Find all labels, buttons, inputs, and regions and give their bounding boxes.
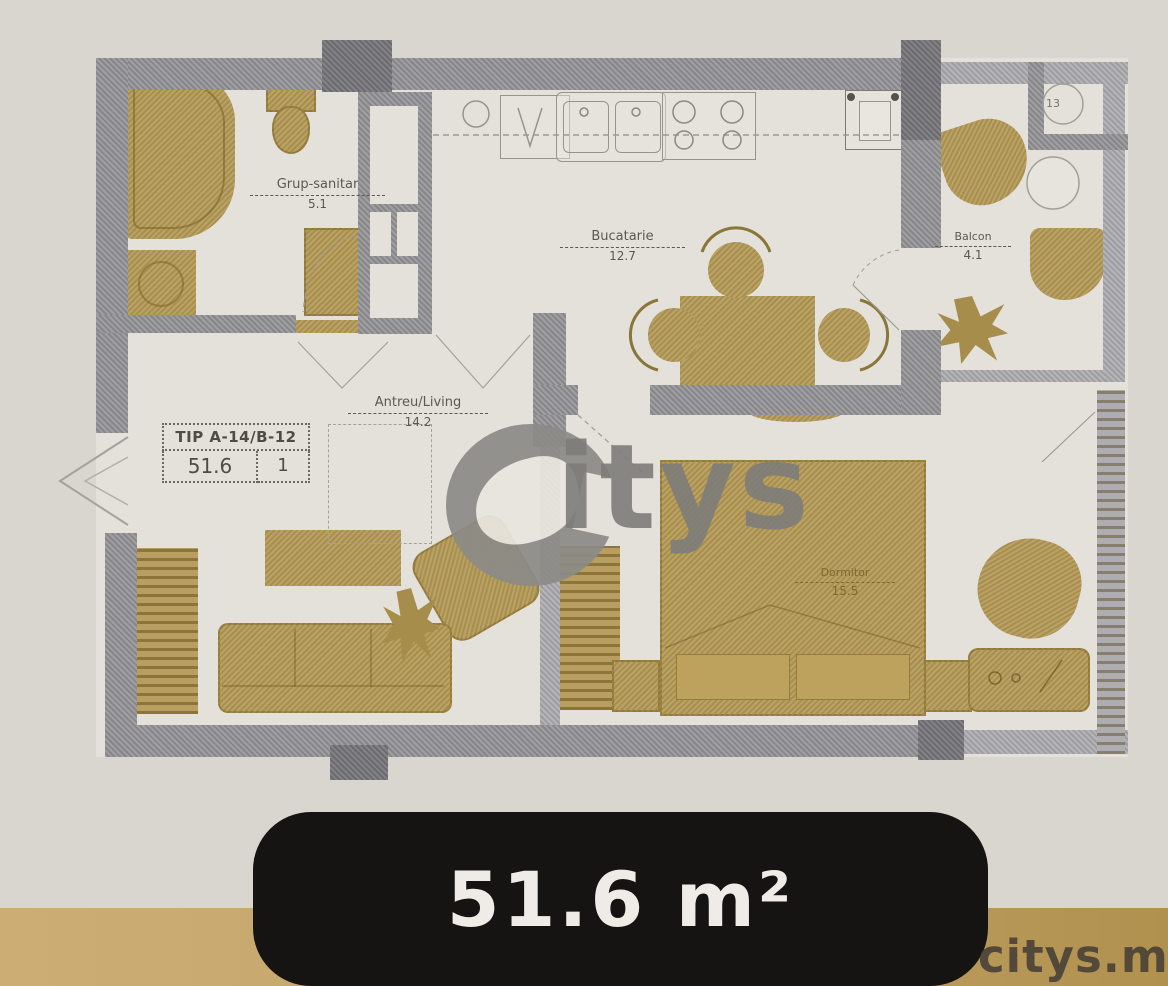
label-balcony: Balcon 4.1 bbox=[935, 230, 1011, 263]
label-kitchen: Bucatarie 12.7 bbox=[560, 228, 685, 264]
bathroom-name: Grup-sanitar bbox=[250, 176, 385, 196]
wall-balcony-bottom bbox=[938, 370, 1105, 382]
toilet-bowl bbox=[272, 106, 310, 154]
site-watermark: citys.md bbox=[978, 930, 1168, 983]
shaft-inset-3 bbox=[397, 212, 418, 256]
living-area: 14.2 bbox=[348, 414, 488, 430]
washing-machine-drum bbox=[138, 261, 184, 307]
bathroom-area: 5.1 bbox=[250, 196, 385, 212]
bathroom-door-leaf bbox=[304, 228, 360, 316]
sofa-back-line bbox=[222, 685, 444, 687]
wall-left-lower bbox=[105, 533, 137, 757]
wall-bottom bbox=[105, 725, 962, 757]
pier-bottom bbox=[330, 745, 388, 780]
unit-type-code: TIP A-14/B-12 bbox=[162, 423, 310, 451]
unit-room-count: 1 bbox=[258, 451, 310, 483]
wall-kitchen-balcony-lower bbox=[901, 330, 941, 415]
wall-left-upper bbox=[96, 58, 128, 433]
label-bedroom: Dormitor 15.5 bbox=[795, 566, 895, 599]
bedroom-area: 15.5 bbox=[795, 583, 895, 599]
dining-chair-left bbox=[648, 308, 700, 362]
dining-chair-right bbox=[818, 308, 870, 362]
shaft-number: 13 bbox=[1046, 97, 1060, 110]
wall-kitchen-living-left bbox=[533, 385, 578, 415]
sofa-seam-1 bbox=[294, 629, 296, 687]
unit-type-box: TIP A-14/B-12 51.6 1 bbox=[162, 423, 310, 483]
column-top-right bbox=[901, 40, 941, 140]
area-badge-text: 51.6 m² bbox=[447, 855, 794, 944]
bed-pillow-left bbox=[676, 654, 790, 700]
bed-pillow-right bbox=[796, 654, 910, 700]
kitchen-boiler bbox=[845, 90, 903, 150]
bathtub-inner-outline bbox=[133, 83, 225, 229]
shaft-room-bottom-wall bbox=[1028, 134, 1128, 150]
shaft-inset-4 bbox=[370, 264, 418, 318]
sink-basin-right bbox=[615, 101, 661, 153]
living-name: Antreu/Living bbox=[348, 394, 488, 414]
column-top-left bbox=[322, 40, 392, 92]
wall-balcony-right bbox=[1103, 62, 1125, 382]
dresser bbox=[968, 648, 1090, 712]
wall-right-lower bbox=[1097, 390, 1125, 754]
unit-total-area: 51.6 bbox=[162, 451, 258, 483]
nightstand-left bbox=[612, 660, 660, 712]
dashed-wardrobe-outline bbox=[328, 424, 432, 544]
dining-table bbox=[680, 296, 815, 398]
kitchen-area: 12.7 bbox=[560, 248, 685, 264]
column-bottom-right bbox=[918, 720, 964, 760]
sink-basin-left bbox=[563, 101, 609, 153]
wall-bathroom-bottom bbox=[96, 315, 296, 333]
nightstand-right bbox=[924, 660, 972, 712]
kitchen-sink bbox=[556, 92, 666, 162]
bedroom-name: Dormitor bbox=[795, 566, 895, 583]
kitchen-name: Bucatarie bbox=[560, 228, 685, 248]
balcony-name: Balcon bbox=[935, 230, 1011, 247]
label-living: Antreu/Living 14.2 bbox=[348, 394, 488, 430]
citys-logo-text: itys bbox=[556, 428, 812, 546]
area-badge: 51.6 m² bbox=[253, 812, 988, 986]
label-bathroom: Grup-sanitar 5.1 bbox=[250, 176, 385, 212]
stove bbox=[662, 92, 756, 160]
kitchen-boiler-inner bbox=[859, 101, 891, 141]
wall-top bbox=[96, 58, 941, 90]
bathroom-door-sill bbox=[296, 320, 358, 333]
washing-machine bbox=[123, 250, 196, 316]
sofa-seam-2 bbox=[370, 629, 372, 687]
balcony-area: 4.1 bbox=[935, 247, 1011, 263]
bathtub bbox=[123, 73, 235, 239]
dining-chair-top bbox=[708, 242, 764, 298]
shaft-inset-2 bbox=[370, 212, 391, 256]
wall-kitchen-living-right bbox=[650, 385, 905, 415]
floor-plan: Grup-sanitar 5.1 Bucatarie 12.7 Antreu/L… bbox=[0, 0, 1168, 986]
